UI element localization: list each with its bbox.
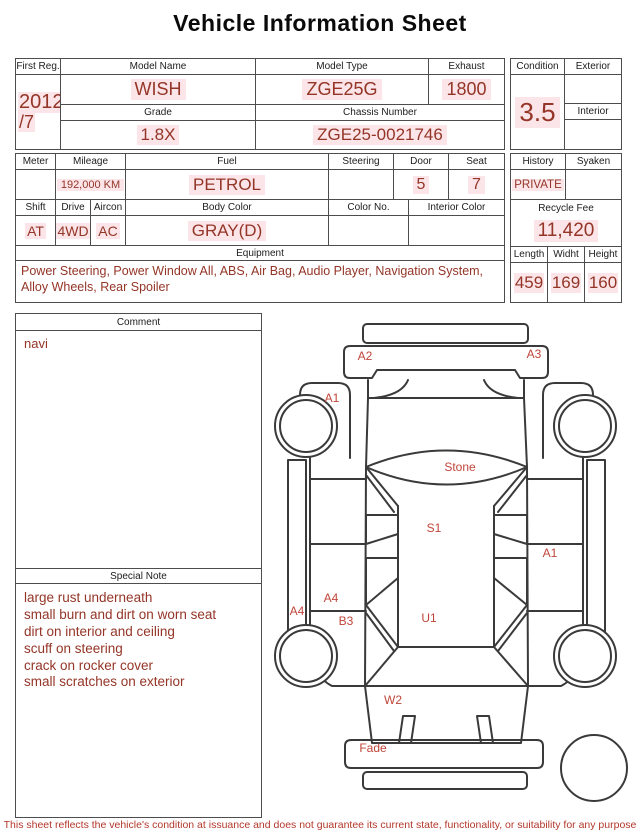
- mileage-label: Mileage: [56, 154, 126, 170]
- vehicle-information-sheet: { "title": "Vehicle Information Sheet", …: [0, 0, 640, 835]
- chassis-number-label: Chassis Number: [256, 105, 504, 121]
- height-label: Height: [585, 247, 621, 263]
- history-fee-table: History Syaken PRIVATE Recycle Fee 11,42…: [510, 153, 622, 303]
- body-edge-upper-left: [366, 398, 368, 467]
- height-value: 160: [585, 263, 621, 302]
- door-value: 5: [394, 170, 449, 200]
- body-color-value: GRAY(D): [126, 216, 329, 246]
- shift-value: AT: [16, 216, 56, 246]
- syaken-value: [566, 170, 621, 200]
- special-note-line: crack on rocker cover: [24, 658, 253, 675]
- wheel-rear-right-inner: [559, 630, 611, 682]
- rear-strip: [363, 772, 527, 789]
- page-title: Vehicle Information Sheet: [0, 10, 640, 37]
- syaken-label: Syaken: [566, 154, 621, 170]
- front-bumper-shape: [344, 346, 548, 378]
- damage-label-a3: A3: [527, 347, 542, 361]
- history-value: PRIVATE: [511, 170, 566, 200]
- steering-value: [329, 170, 394, 200]
- tailgate-notch-right: [477, 716, 493, 743]
- wheel-rear-left-inner: [280, 630, 332, 682]
- sill-bar-right: [587, 460, 605, 643]
- damage-label-w2: W2: [384, 693, 402, 707]
- interior-label: Interior: [565, 104, 621, 120]
- damage-label-a4-sill: A4: [290, 604, 305, 618]
- interior-color-value: [409, 216, 504, 246]
- b-pillar-left: [366, 515, 398, 544]
- condition-value: 3.5: [511, 75, 565, 149]
- grade-value: 1.8X: [61, 121, 256, 149]
- first-reg-month: /7: [18, 113, 35, 132]
- special-note-line: small scratches on exterior: [24, 674, 253, 691]
- interior-color-label: Interior Color: [409, 200, 504, 216]
- c-pillar-left: [366, 558, 398, 605]
- recycle-fee-value: 11,420: [511, 216, 621, 246]
- damage-label-s1: S1: [427, 521, 442, 535]
- special-note-line: dirt on interior and ceiling: [24, 624, 253, 641]
- d-pillar-right: [494, 605, 527, 651]
- damage-label-a4-door: A4: [324, 591, 339, 605]
- model-name-label: Model Name: [61, 59, 256, 75]
- mileage-value: 192,000 KM: [56, 170, 126, 200]
- damage-label-a2: A2: [358, 349, 373, 363]
- shift-label: Shift: [16, 200, 56, 216]
- equipment-label: Equipment: [16, 246, 504, 261]
- comment-label: Comment: [16, 314, 261, 331]
- door-dividers-right: [527, 479, 583, 611]
- color-no-value: [329, 216, 409, 246]
- c-pillar-right: [494, 558, 527, 605]
- damage-label-b3: B3: [339, 614, 354, 628]
- special-note-label: Special Note: [16, 568, 261, 584]
- color-no-label: Color No.: [329, 200, 409, 216]
- front-grille-strip: [363, 324, 528, 343]
- door-label: Door: [394, 154, 449, 170]
- aircon-value: AC: [91, 216, 126, 246]
- fuel-value: PETROL: [126, 170, 329, 200]
- drive-label: Drive: [56, 200, 91, 216]
- exterior-label: Exterior: [565, 59, 621, 75]
- damage-label-a1-front: A1: [325, 391, 340, 405]
- first-reg-value: 2012 /7: [16, 75, 61, 149]
- damage-label-u1: U1: [421, 611, 437, 625]
- damage-label-a1-right: A1: [543, 546, 558, 560]
- steering-label: Steering: [329, 154, 394, 170]
- special-note-line: scuff on steering: [24, 641, 253, 658]
- chassis-number-value: ZGE25-0021746: [256, 121, 504, 149]
- recycle-fee-label: Recycle Fee: [511, 200, 621, 216]
- model-info-table: First Reg. Model Name Model Type Exhaust…: [15, 58, 505, 150]
- special-note-line: small burn and dirt on worn seat: [24, 607, 253, 624]
- condition-table: Condition 3.5 Exterior Interior: [510, 58, 622, 150]
- special-note-line: large rust underneath: [24, 590, 253, 607]
- comment-note-box: Comment navi Special Note large rust und…: [15, 313, 262, 818]
- aircon-label: Aircon: [91, 200, 126, 216]
- history-label: History: [511, 154, 566, 170]
- hood-arch-left: [374, 380, 408, 398]
- wheel-front-left-inner: [280, 400, 332, 452]
- first-reg-year: 2012: [18, 92, 61, 113]
- damage-label-fade: Fade: [359, 741, 387, 755]
- rear-window-shape: [365, 647, 528, 686]
- drive-value: 4WD: [56, 216, 91, 246]
- d-pillar-left: [366, 605, 398, 651]
- tailgate-notch-left: [399, 716, 415, 743]
- fuel-label: Fuel: [126, 154, 329, 170]
- disclaimer-text: This sheet reflects the vehicle's condit…: [0, 819, 640, 831]
- length-label: Length: [511, 247, 548, 263]
- body-edge-upper-right: [524, 398, 527, 467]
- damage-label-stone: Stone: [444, 460, 476, 474]
- condition-label: Condition: [511, 59, 565, 75]
- model-type-value: ZGE25G: [256, 75, 429, 105]
- wheel-front-right-inner: [559, 400, 611, 452]
- grade-label: Grade: [61, 105, 256, 121]
- car-damage-diagram: A2 A3 A1 Stone S1 A1 A4 A4 B3 U1 W2 Fade: [262, 310, 640, 808]
- special-note-list: large rust underneath small burn and dir…: [16, 584, 261, 697]
- body-color-label: Body Color: [126, 200, 329, 216]
- exterior-value: [565, 75, 621, 104]
- width-label: Widht: [548, 247, 585, 263]
- seat-label: Seat: [449, 154, 504, 170]
- first-reg-label: First Reg.: [16, 59, 61, 75]
- exhaust-value: 1800: [429, 75, 504, 105]
- exhaust-label: Exhaust: [429, 59, 504, 75]
- equipment-value: Power Steering, Power Window All, ABS, A…: [16, 261, 504, 302]
- model-name-value: WISH: [61, 75, 256, 105]
- details-table: Meter Mileage Fuel Steering Door Seat 19…: [15, 153, 505, 303]
- meter-label: Meter: [16, 154, 56, 170]
- model-type-label: Model Type: [256, 59, 429, 75]
- comment-text: navi: [16, 331, 261, 568]
- meter-value: [16, 170, 56, 200]
- length-value: 459: [511, 263, 548, 302]
- seat-value: 7: [449, 170, 504, 200]
- width-value: 169: [548, 263, 585, 302]
- spare-wheel: [561, 735, 627, 801]
- b-pillar-right: [494, 515, 527, 544]
- hood-arch-right: [484, 380, 518, 398]
- interior-value: [565, 120, 621, 149]
